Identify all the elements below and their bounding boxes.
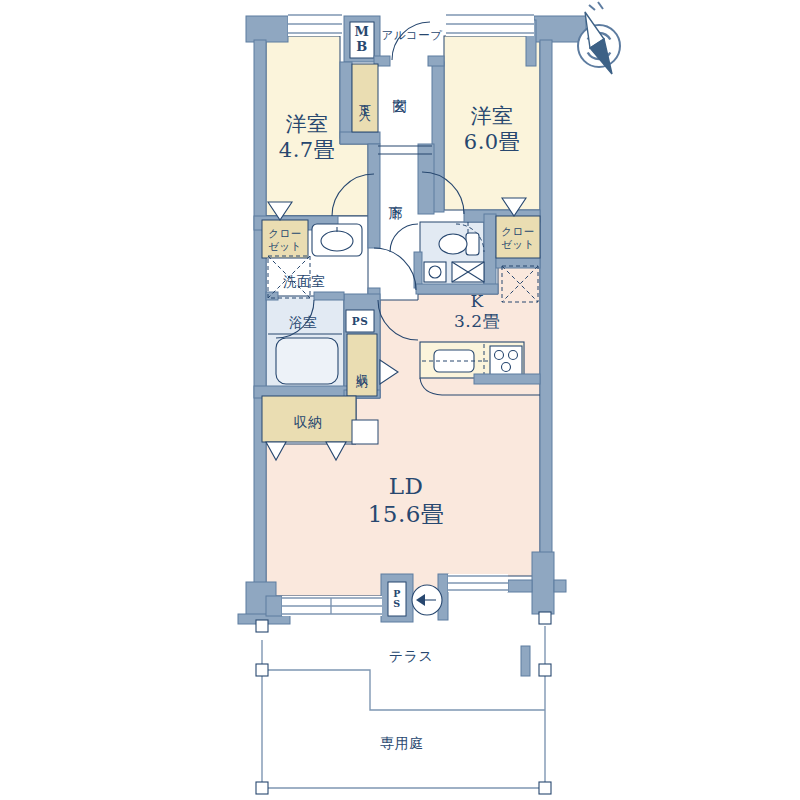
gas-stove-icon <box>490 346 522 376</box>
washroom-label: 洗面室 <box>283 273 325 289</box>
wall-bottom-left-connector <box>266 596 282 616</box>
pillar-bottom-right-arm-right <box>554 580 566 592</box>
wall-toilet-closet-divider <box>484 214 496 288</box>
terrace-step-line <box>262 670 545 710</box>
compass-north-icon <box>578 2 620 74</box>
washer-pan-icon <box>452 262 484 282</box>
wall-entrance-top-right-stub <box>428 56 444 66</box>
floor-plan-drawing <box>0 0 800 800</box>
shoe-box-label: 下足入 <box>359 95 371 101</box>
garden-wall-stub <box>521 646 530 676</box>
alcove-label: アルコープ <box>381 28 442 42</box>
closet-right-label: クロー ゼット <box>501 225 535 251</box>
water-heater-icon <box>412 585 442 615</box>
post-bottom-right-top <box>539 612 551 624</box>
terrace-label: テラス <box>389 648 433 665</box>
closet-left-label: クロー ゼット <box>268 227 302 253</box>
storage-lower-label: 収納 <box>294 414 323 431</box>
washroom-door-arc <box>374 248 416 290</box>
wall-left <box>254 40 266 584</box>
pillar-top-left <box>246 16 288 42</box>
bathroom-label: 浴室 <box>289 314 317 330</box>
toilet-icon <box>439 233 479 255</box>
entrance-label: 玄関 <box>393 87 407 91</box>
window-ld-bottom-left <box>282 596 382 616</box>
corridor-label: 廊下 <box>389 194 403 198</box>
pipe-space-mid-label: PS <box>352 315 368 328</box>
living-dining-label: LD 15.6畳 <box>368 473 445 528</box>
bedroom1-label: 洋室 4.7畳 <box>279 112 335 163</box>
wall-right <box>540 40 552 554</box>
pillar-top-right <box>534 16 586 42</box>
wall-bath-top-right <box>314 292 344 300</box>
meter-box-label: M B <box>355 25 370 55</box>
toilet-door-arc <box>390 224 418 252</box>
post-right-bottom <box>539 782 551 794</box>
private-garden-label: 専用庭 <box>380 735 424 752</box>
washstand-bowl-icon <box>321 231 353 251</box>
kitchen-counter <box>420 342 524 378</box>
wall-kitchen-counter-stub <box>474 374 540 384</box>
terrace-garden-outline <box>256 612 551 794</box>
floor-plan: 洋室 4.7畳 洋室 6.0畳 M B アルコープ 玄関 下足入 廊下 クロー … <box>0 0 800 800</box>
toilet-sink-icon <box>424 262 446 282</box>
bathtub-icon <box>276 338 338 384</box>
post-right-mid <box>539 664 551 676</box>
window-bedroom1-top <box>288 14 342 36</box>
wall-corridor-left-upper <box>368 144 380 248</box>
window-bedroom2-top <box>446 14 534 36</box>
post-left-mid <box>256 664 268 676</box>
pipe-space-bottom-label: P S <box>393 589 401 610</box>
wall-bedroom1-center <box>340 62 352 138</box>
kitchen-label: K 3.2畳 <box>454 292 500 331</box>
post-bottom-left-top <box>256 620 268 632</box>
pillar-bottom-right-arm-left <box>508 580 532 592</box>
storage-lower-notch <box>352 420 378 444</box>
storage-side-label: 収納 <box>356 364 368 368</box>
wall-under-shoebox <box>340 132 380 144</box>
post-left-bottom <box>256 782 268 794</box>
window-ld-bottom-right <box>448 574 508 592</box>
bedroom2-label: 洋室 6.0畳 <box>464 104 520 155</box>
pillar-bottom-right <box>532 552 554 614</box>
